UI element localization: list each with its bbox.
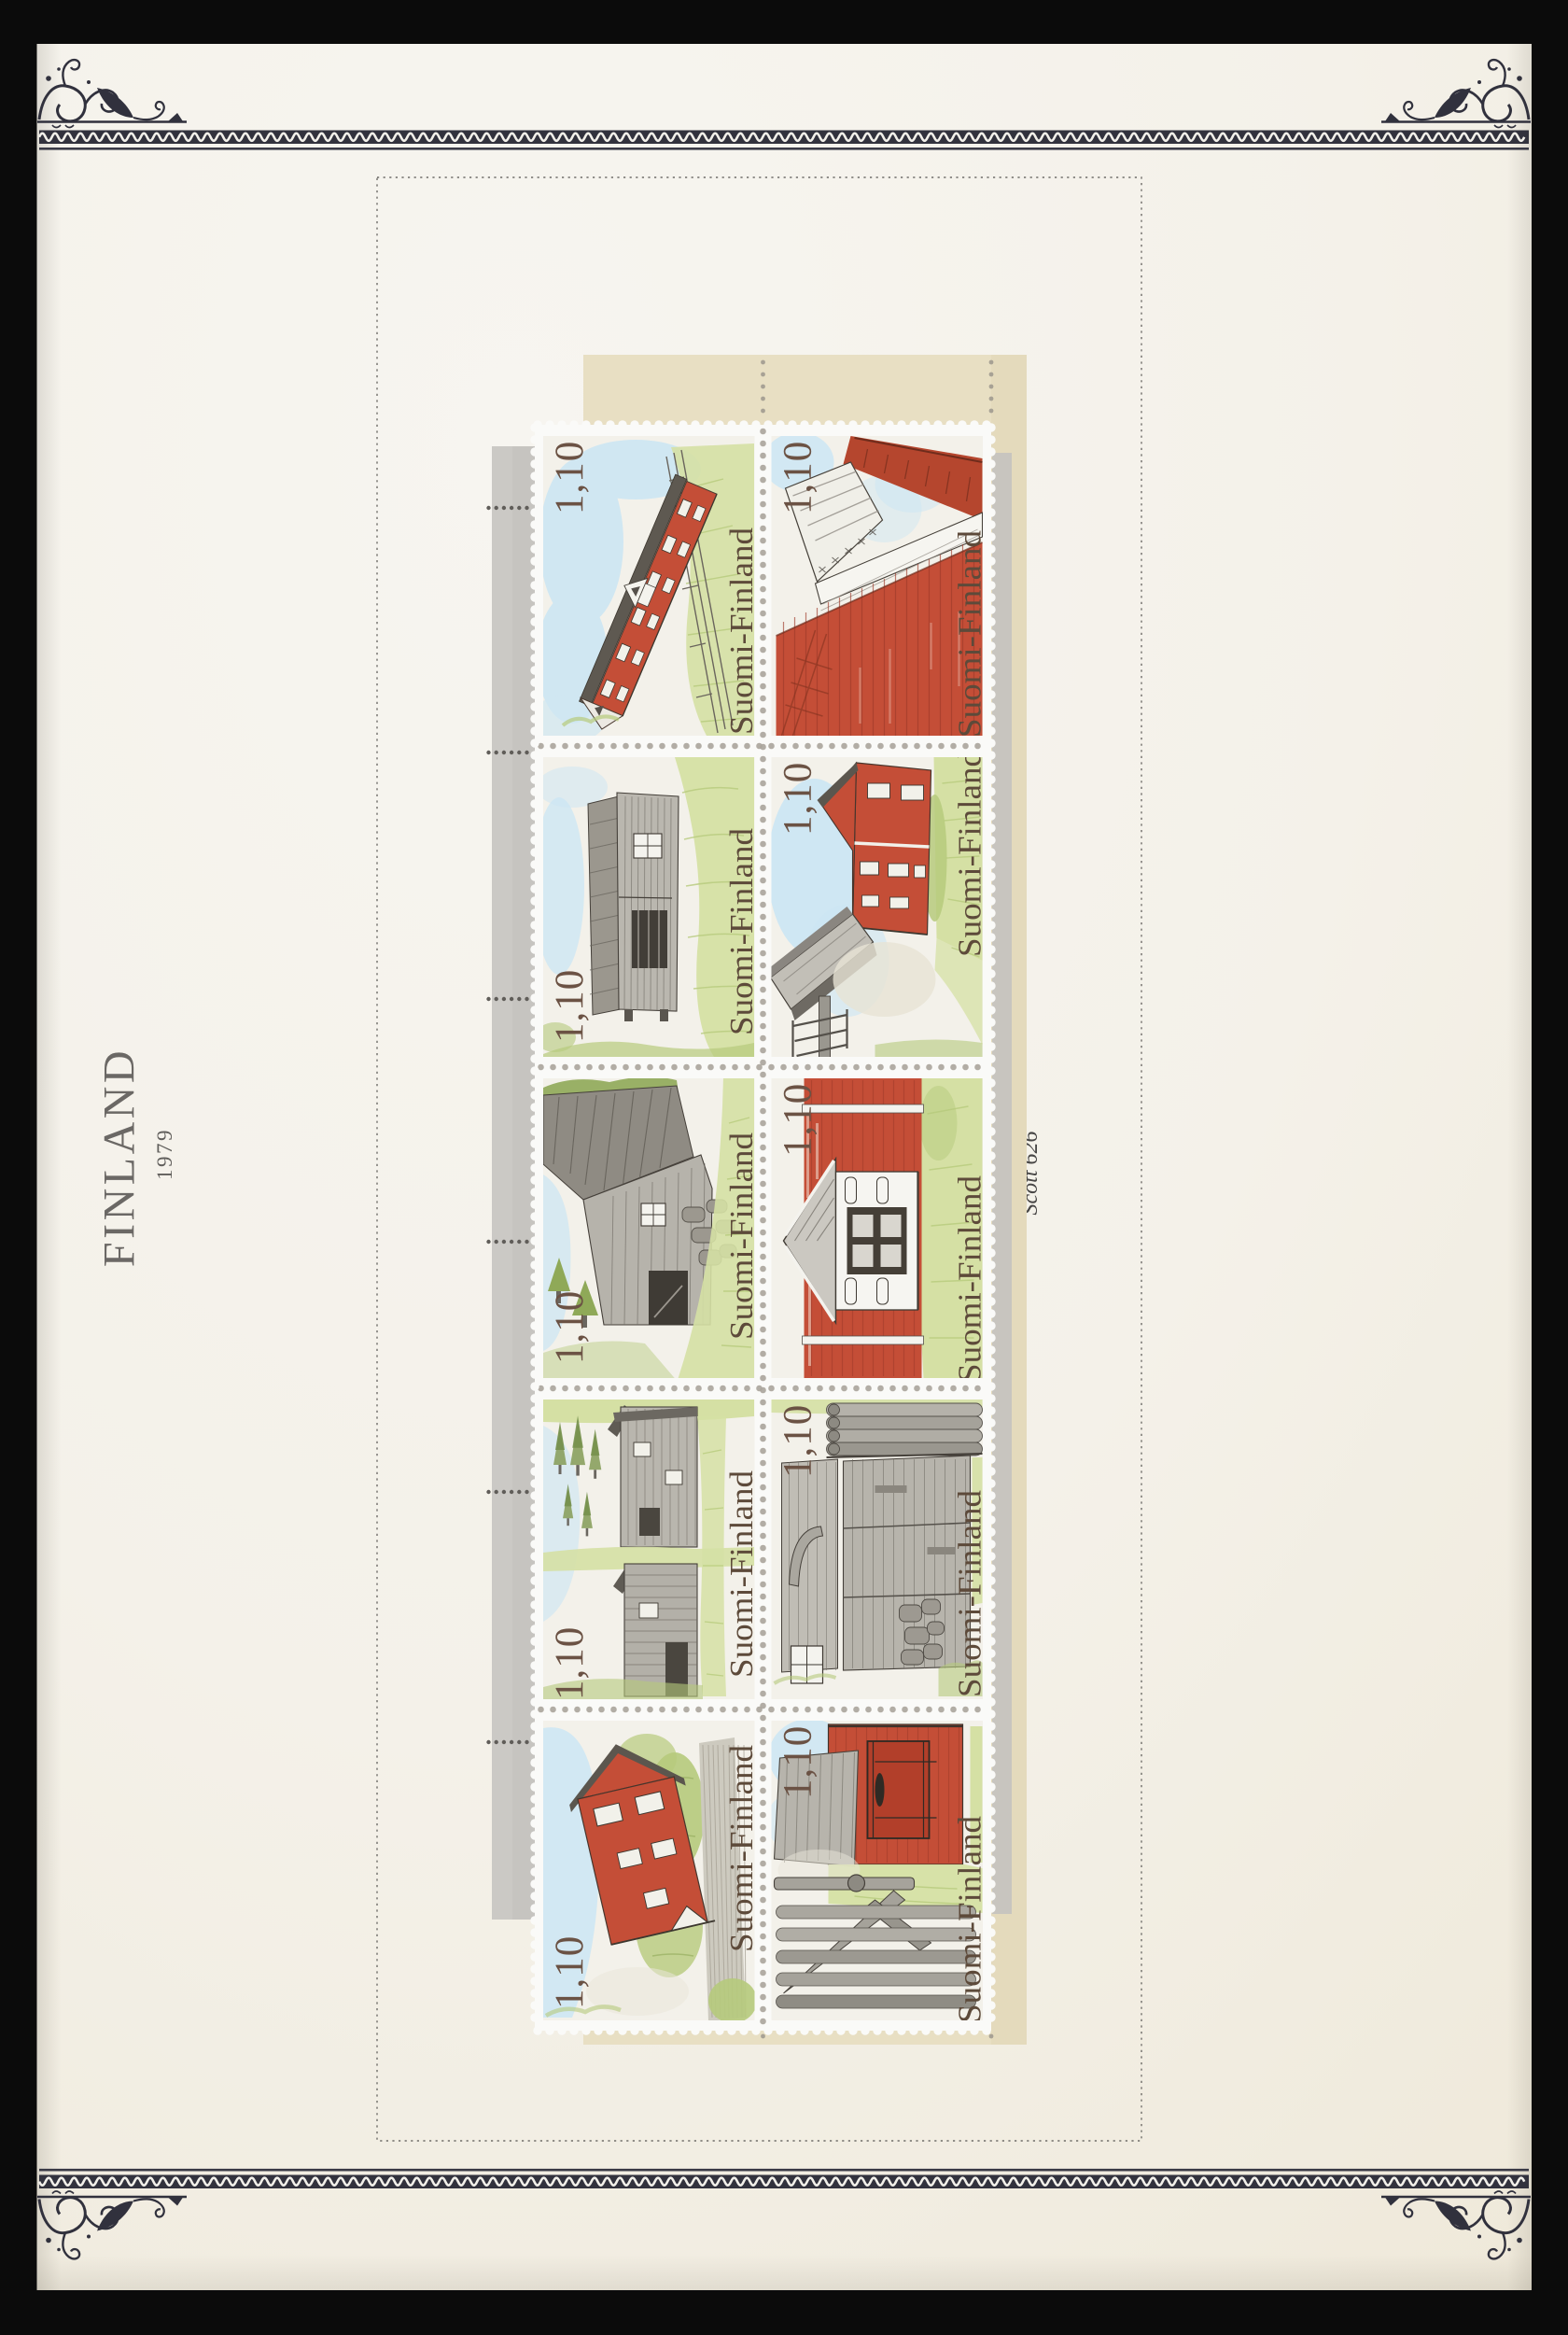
svg-text:Suomi-Finland: Suomi-Finland <box>952 529 988 738</box>
svg-text:1,10: 1,10 <box>548 1626 592 1700</box>
svg-text:1,10: 1,10 <box>777 1404 820 1478</box>
svg-text:1,10: 1,10 <box>548 1935 592 2009</box>
svg-text:Suomi-Finland: Suomi-Finland <box>723 827 760 1035</box>
svg-text:Suomi-Finland: Suomi-Finland <box>723 527 760 735</box>
svg-text:Suomi-Finland: Suomi-Finland <box>723 1744 760 1952</box>
svg-text:Suomi-Finland: Suomi-Finland <box>723 1132 760 1340</box>
svg-text:1979: 1979 <box>153 1128 176 1180</box>
svg-text:1,10: 1,10 <box>777 1725 820 1799</box>
svg-text:1,10: 1,10 <box>777 762 820 836</box>
svg-text:1,10: 1,10 <box>777 1083 820 1157</box>
svg-text:FINLAND: FINLAND <box>95 1048 145 1267</box>
svg-text:Suomi-Finland: Suomi-Finland <box>952 749 988 957</box>
svg-text:Suomi-Finland: Suomi-Finland <box>952 1175 988 1383</box>
svg-text:Suomi-Finland: Suomi-Finland <box>952 1489 988 1697</box>
svg-text:Suomi-Finland: Suomi-Finland <box>952 1815 988 2023</box>
svg-text:Suomi-Finland: Suomi-Finland <box>723 1470 760 1678</box>
svg-text:1,10: 1,10 <box>548 1290 592 1364</box>
svg-text:1,10: 1,10 <box>548 969 592 1043</box>
svg-text:1,10: 1,10 <box>548 441 592 514</box>
svg-text:1,10: 1,10 <box>777 441 820 514</box>
